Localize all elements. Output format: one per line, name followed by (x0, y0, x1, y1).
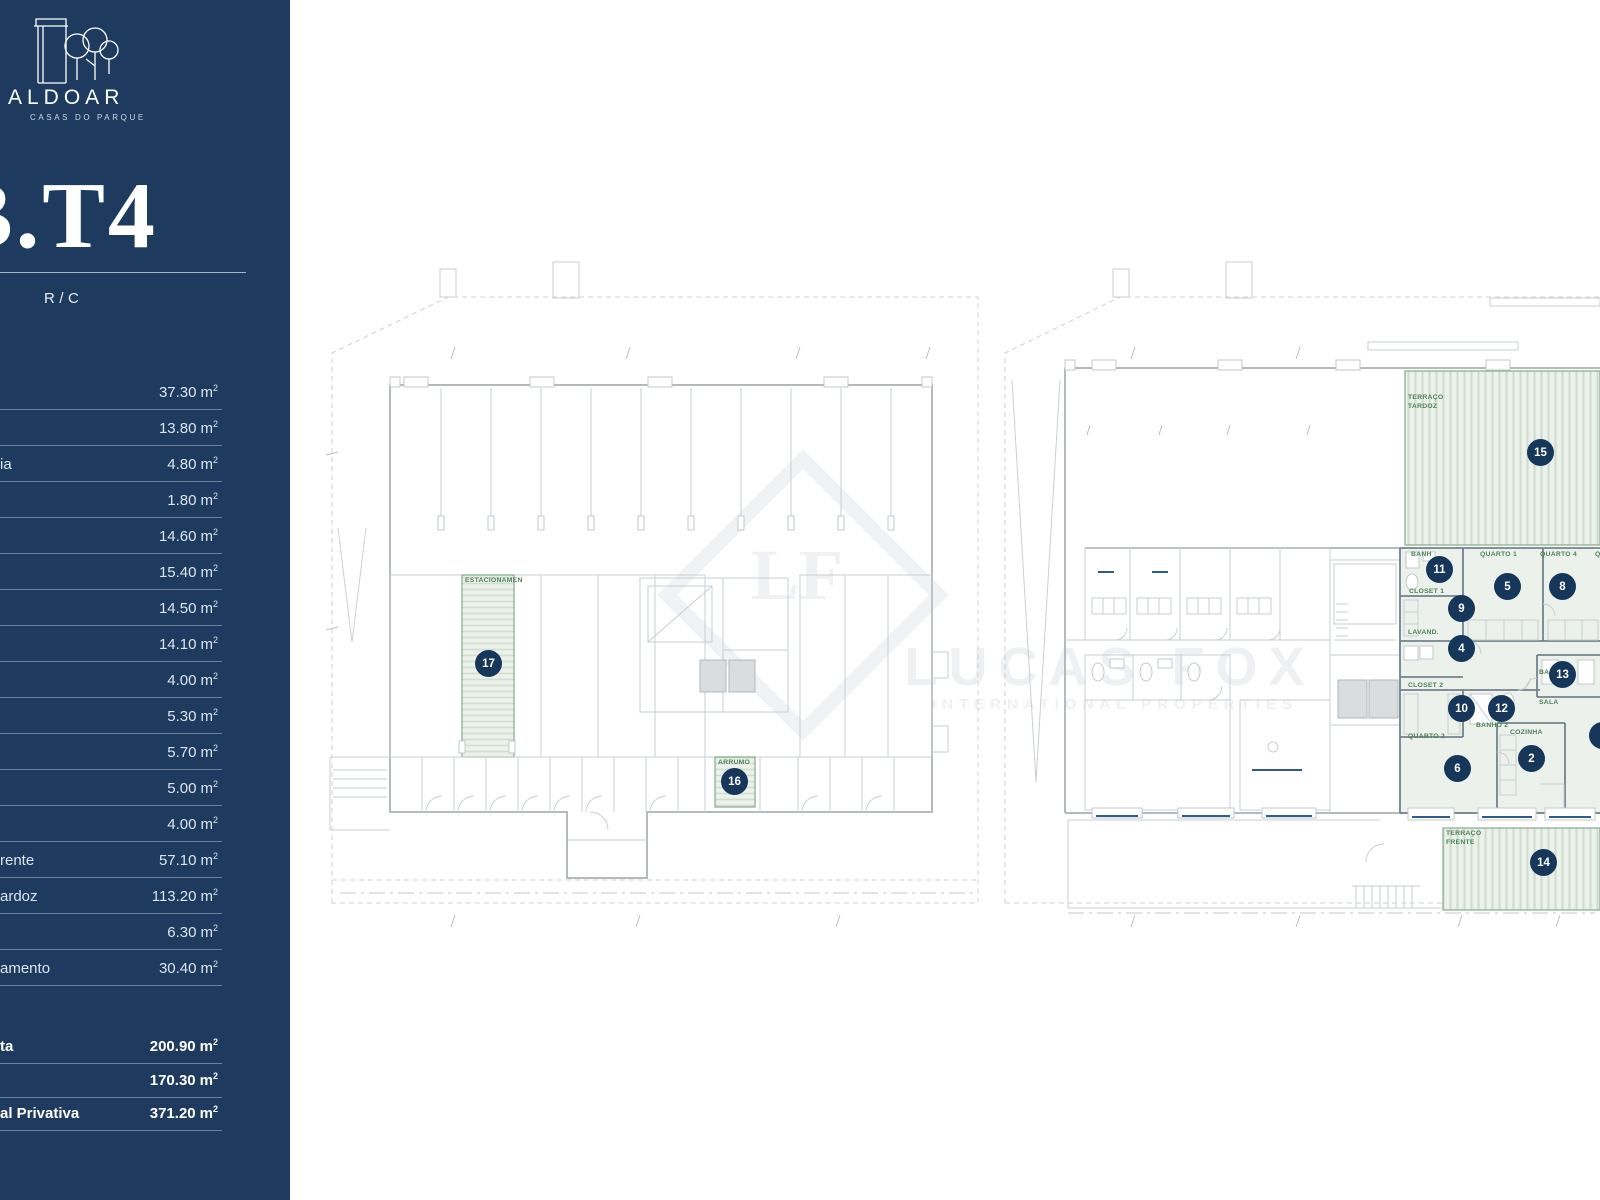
stair-core (640, 578, 788, 712)
room-label-closet1: CLOSET 1 (1409, 588, 1444, 597)
area-value-number: 15.40 (159, 564, 197, 581)
room-label-sala: SALA (1539, 699, 1559, 708)
room-label-banho1: BANH (1411, 551, 1432, 560)
total-value-number: 200.90 (150, 1038, 196, 1055)
area-value-number: 6.30 (167, 924, 196, 941)
area-row: 1.80m2 (0, 482, 222, 518)
area-unit-sup: 2 (213, 959, 218, 969)
plan-sheet: LF LUCAS FOX INTERNATIONAL PROPERTIES (0, 0, 1600, 1200)
area-unit: m (200, 924, 213, 941)
area-row-value: 57.10m2 (159, 851, 218, 869)
area-unit: m (200, 816, 213, 833)
total-unit-sup: 2 (213, 1037, 218, 1047)
total-row: ta 200.90m2 (0, 1031, 222, 1064)
area-unit-sup: 2 (213, 563, 218, 573)
badge-15: 15 (1527, 439, 1554, 466)
room-label-terraco-frente-1: TERRAÇO (1446, 830, 1481, 839)
room-label-lavandaria: LAVAND. (1408, 629, 1439, 638)
area-row-value: 14.10m2 (159, 635, 218, 653)
building-core (1330, 548, 1400, 813)
total-unit-sup: 2 (213, 1104, 218, 1114)
area-list: 37.30m2 13.80m2 ia 4.80m2 1.80m2 (0, 374, 222, 986)
area-row-label: rente (0, 852, 34, 869)
room-label-terraco-frente-2: FRENTE (1446, 839, 1475, 848)
area-row-value: 15.40m2 (159, 563, 218, 581)
area-unit-sup: 2 (213, 779, 218, 789)
total-row-value: 200.90m2 (150, 1037, 218, 1055)
area-value-number: 13.80 (159, 420, 197, 437)
area-value-number: 30.40 (159, 960, 197, 977)
total-unit: m (200, 1072, 213, 1089)
area-value-number: 14.60 (159, 528, 197, 545)
area-row-label: amento (0, 960, 50, 977)
room-label-terraco-tardoz-2: TARDOZ (1408, 403, 1437, 412)
area-row: 14.50m2 (0, 590, 222, 626)
badge-2: 2 (1518, 745, 1545, 772)
area-row: rente 57.10m2 (0, 842, 222, 878)
area-row: ardoz 113.20m2 (0, 878, 222, 914)
area-unit: m (200, 960, 213, 977)
total-unit: m (200, 1038, 213, 1055)
area-unit: m (200, 420, 213, 437)
room-label-quarto2: QUARTO 2 (1408, 733, 1445, 742)
area-row-value: 1.80m2 (167, 491, 218, 509)
area-unit-sup: 2 (213, 671, 218, 681)
area-unit-sup: 2 (213, 923, 218, 933)
neighbour-unit (1065, 548, 1400, 810)
area-row: 14.60m2 (0, 518, 222, 554)
area-row: 15.40m2 (0, 554, 222, 590)
unit-title: B.T4 (0, 168, 158, 264)
badge-11: 11 (1426, 556, 1453, 583)
area-row: ia 4.80m2 (0, 446, 222, 482)
badge-14: 14 (1530, 849, 1557, 876)
area-value-number: 4.00 (167, 672, 196, 689)
area-row: 5.30m2 (0, 698, 222, 734)
area-row-value: 5.00m2 (167, 779, 218, 797)
area-value-number: 5.30 (167, 708, 196, 725)
storage-row (390, 757, 932, 812)
brand-wordmark: ALDOAR (8, 86, 124, 110)
mid-parking-block (390, 575, 705, 757)
total-row: 170.30m2 (0, 1064, 222, 1097)
room-label-quarto1: QUARTO 1 (1480, 551, 1517, 560)
badge-9: 9 (1448, 595, 1475, 622)
room-label-quarto-cut: Q (1595, 551, 1600, 560)
area-row-value: 4.00m2 (167, 815, 218, 833)
room-label-quarto4: QUARTO 4 (1540, 551, 1577, 560)
sidebar: ALDOAR CASAS DO PARQUE B.T4 R/C 37.30m2 … (0, 0, 290, 1200)
room-label-cozinha: COZINHA (1510, 729, 1543, 738)
room-label-estacionamento: ESTACIONAMEN (465, 577, 523, 586)
area-unit-sup: 2 (213, 419, 218, 429)
area-row-value: 6.30m2 (167, 923, 218, 941)
floor-label: R/C (44, 290, 83, 307)
area-value-number: 4.00 (167, 816, 196, 833)
area-unit: m (200, 492, 213, 509)
parking-stalls (438, 388, 894, 530)
area-row-value: 13.80m2 (159, 419, 218, 437)
aldoar-logo-icon (0, 16, 150, 96)
area-row-value: 14.50m2 (159, 599, 218, 617)
area-value-number: 37.30 (159, 384, 197, 401)
badge-12: 12 (1488, 695, 1515, 722)
total-row-label: al Privativa (0, 1105, 79, 1122)
area-unit-sup: 2 (213, 851, 218, 861)
total-value-number: 371.20 (150, 1105, 196, 1122)
area-row: 37.30m2 (0, 374, 222, 410)
brand-tagline: CASAS DO PARQUE (30, 113, 146, 122)
area-unit: m (200, 672, 213, 689)
area-unit: m (200, 780, 213, 797)
area-row: 5.70m2 (0, 734, 222, 770)
badge-17: 17 (475, 650, 502, 677)
badge-13: 13 (1549, 661, 1576, 688)
area-unit: m (200, 564, 213, 581)
area-unit-sup: 2 (213, 815, 218, 825)
area-unit: m (200, 600, 213, 617)
area-row-value: 4.00m2 (167, 671, 218, 689)
badge-10: 10 (1448, 695, 1475, 722)
room-label-banho2: BANHO 2 (1476, 722, 1508, 731)
badge-6: 6 (1444, 755, 1471, 782)
area-value-number: 4.80 (167, 456, 196, 473)
total-row: al Privativa 371.20m2 (0, 1098, 222, 1131)
area-value-number: 57.10 (159, 852, 197, 869)
terrace-frente (1068, 820, 1600, 910)
area-row-value: 14.60m2 (159, 527, 218, 545)
area-value-number: 1.80 (167, 492, 196, 509)
totals-list: ta 200.90m2 170.30m2 al Privativa 371.20… (0, 1031, 222, 1131)
badge-4: 4 (1448, 635, 1475, 662)
area-unit: m (200, 744, 213, 761)
area-row: 5.00m2 (0, 770, 222, 806)
room-label-terraco-tardoz-1: TERRAÇO (1408, 394, 1443, 403)
area-unit-sup: 2 (213, 383, 218, 393)
area-row: 6.30m2 (0, 914, 222, 950)
area-row: 4.00m2 (0, 662, 222, 698)
area-row-value: 5.30m2 (167, 707, 218, 725)
badge-16: 16 (721, 768, 748, 795)
right-parking-block (800, 575, 932, 757)
total-unit: m (200, 1105, 213, 1122)
area-row-value: 4.80m2 (167, 455, 218, 473)
room-label-banho3: BA (1539, 669, 1549, 678)
area-row-label: ia (0, 456, 12, 473)
area-row: 4.00m2 (0, 806, 222, 842)
area-unit-sup: 2 (213, 455, 218, 465)
area-unit: m (200, 708, 213, 725)
area-unit-sup: 2 (213, 887, 218, 897)
title-divider (0, 272, 246, 273)
area-unit-sup: 2 (213, 707, 218, 717)
area-value-number: 14.10 (159, 636, 197, 653)
area-unit-sup: 2 (213, 599, 218, 609)
room-label-arrumo: ARRUMO (718, 759, 750, 768)
area-unit: m (200, 456, 213, 473)
left-plan-garage (326, 262, 978, 927)
total-value-number: 170.30 (150, 1072, 196, 1089)
area-row-value: 37.30m2 (159, 383, 218, 401)
badge-8: 8 (1549, 573, 1576, 600)
area-unit-sup: 2 (213, 491, 218, 501)
area-value-number: 14.50 (159, 600, 197, 617)
area-unit: m (200, 636, 213, 653)
area-row-value: 30.40m2 (159, 959, 218, 977)
area-unit: m (200, 384, 213, 401)
total-unit-sup: 2 (213, 1071, 218, 1081)
area-unit-sup: 2 (213, 527, 218, 537)
area-unit-sup: 2 (213, 743, 218, 753)
area-unit: m (200, 528, 213, 545)
area-row-label: ardoz (0, 888, 38, 905)
area-row-value: 113.20m2 (152, 887, 218, 905)
room-label-closet2: CLOSET 2 (1408, 682, 1443, 691)
area-value-number: 5.70 (167, 744, 196, 761)
area-row: amento 30.40m2 (0, 950, 222, 986)
area-value-number: 113.20 (152, 888, 197, 905)
total-row-value: 170.30m2 (150, 1071, 218, 1089)
total-row-value: 371.20m2 (150, 1104, 218, 1122)
area-unit: m (200, 888, 213, 905)
area-row: 13.80m2 (0, 410, 222, 446)
area-row-value: 5.70m2 (167, 743, 218, 761)
area-unit-sup: 2 (213, 635, 218, 645)
area-unit: m (200, 852, 213, 869)
area-value-number: 5.00 (167, 780, 196, 797)
total-row-label: ta (0, 1038, 13, 1055)
badge-5: 5 (1494, 573, 1521, 600)
floor-plans-canvas (290, 0, 1600, 1200)
area-row: 14.10m2 (0, 626, 222, 662)
